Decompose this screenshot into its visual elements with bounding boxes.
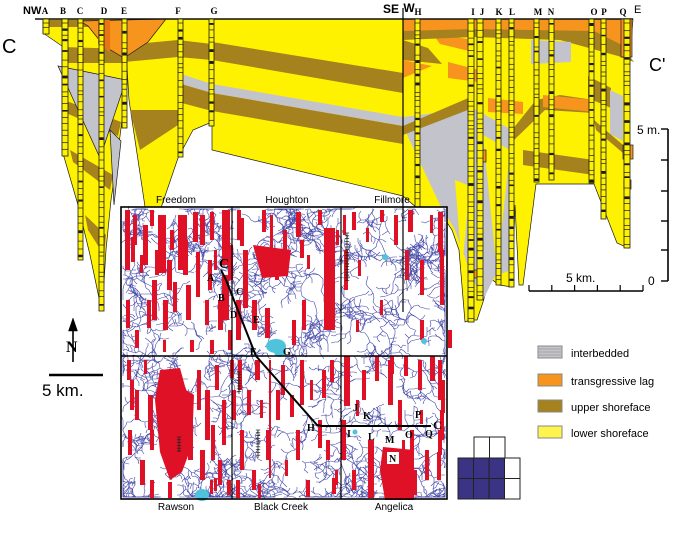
svg-text:E: E bbox=[634, 4, 641, 16]
svg-text:NW: NW bbox=[23, 5, 42, 17]
svg-text:L: L bbox=[509, 7, 515, 17]
svg-text:Angelica: Angelica bbox=[375, 502, 414, 513]
svg-text:O: O bbox=[405, 430, 413, 441]
svg-text:Q: Q bbox=[619, 7, 626, 17]
svg-text:L: L bbox=[368, 432, 375, 443]
svg-text:G: G bbox=[210, 6, 217, 16]
svg-text:D: D bbox=[230, 310, 237, 321]
svg-text:5 m.: 5 m. bbox=[637, 123, 660, 137]
svg-text:O: O bbox=[590, 7, 597, 17]
svg-text:Houghton: Houghton bbox=[265, 195, 308, 206]
svg-text:F: F bbox=[175, 6, 181, 16]
svg-text:C: C bbox=[236, 287, 243, 298]
svg-text:J: J bbox=[353, 403, 358, 414]
svg-text:5 km.: 5 km. bbox=[42, 381, 84, 400]
svg-text:K: K bbox=[363, 411, 371, 422]
svg-text:lower shoreface: lower shoreface bbox=[571, 428, 649, 440]
svg-text:SE: SE bbox=[383, 2, 399, 16]
svg-text:J: J bbox=[480, 7, 485, 17]
svg-text:5 km.: 5 km. bbox=[566, 271, 595, 285]
svg-text:C: C bbox=[433, 418, 442, 432]
svg-text:Freedom: Freedom bbox=[156, 195, 196, 206]
svg-text:A: A bbox=[42, 6, 49, 16]
svg-text:M: M bbox=[385, 435, 395, 446]
svg-text:C: C bbox=[77, 6, 84, 16]
svg-text:D: D bbox=[101, 6, 108, 16]
svg-text:Rawson: Rawson bbox=[158, 502, 194, 513]
svg-text:M: M bbox=[534, 7, 543, 17]
svg-text:G: G bbox=[283, 347, 291, 358]
svg-text:transgressive lag: transgressive lag bbox=[571, 376, 654, 388]
svg-text:C': C' bbox=[649, 55, 665, 75]
svg-text:H: H bbox=[414, 7, 421, 17]
svg-text:N: N bbox=[389, 454, 397, 465]
svg-text:F: F bbox=[250, 347, 256, 358]
svg-text:I: I bbox=[471, 7, 475, 17]
svg-text:Fillmore: Fillmore bbox=[374, 195, 410, 206]
svg-text:interbedded: interbedded bbox=[571, 348, 629, 360]
svg-text:E: E bbox=[253, 315, 260, 326]
svg-text:N: N bbox=[66, 339, 78, 356]
svg-text:N: N bbox=[548, 7, 555, 17]
svg-text:I: I bbox=[347, 429, 351, 440]
svg-text:E: E bbox=[121, 6, 127, 16]
svg-text:B: B bbox=[218, 293, 225, 304]
svg-text:C: C bbox=[219, 257, 229, 272]
svg-text:H: H bbox=[307, 423, 315, 434]
svg-text:Black Creek: Black Creek bbox=[254, 502, 309, 513]
svg-text:0: 0 bbox=[648, 274, 655, 288]
svg-text:Q: Q bbox=[425, 429, 433, 440]
svg-text:B: B bbox=[60, 6, 66, 16]
svg-text:A: A bbox=[207, 273, 215, 284]
svg-text:P: P bbox=[601, 7, 607, 17]
svg-text:C: C bbox=[2, 36, 16, 58]
svg-text:upper shoreface: upper shoreface bbox=[571, 402, 651, 414]
svg-text:P: P bbox=[415, 410, 421, 421]
svg-text:K: K bbox=[495, 7, 502, 17]
